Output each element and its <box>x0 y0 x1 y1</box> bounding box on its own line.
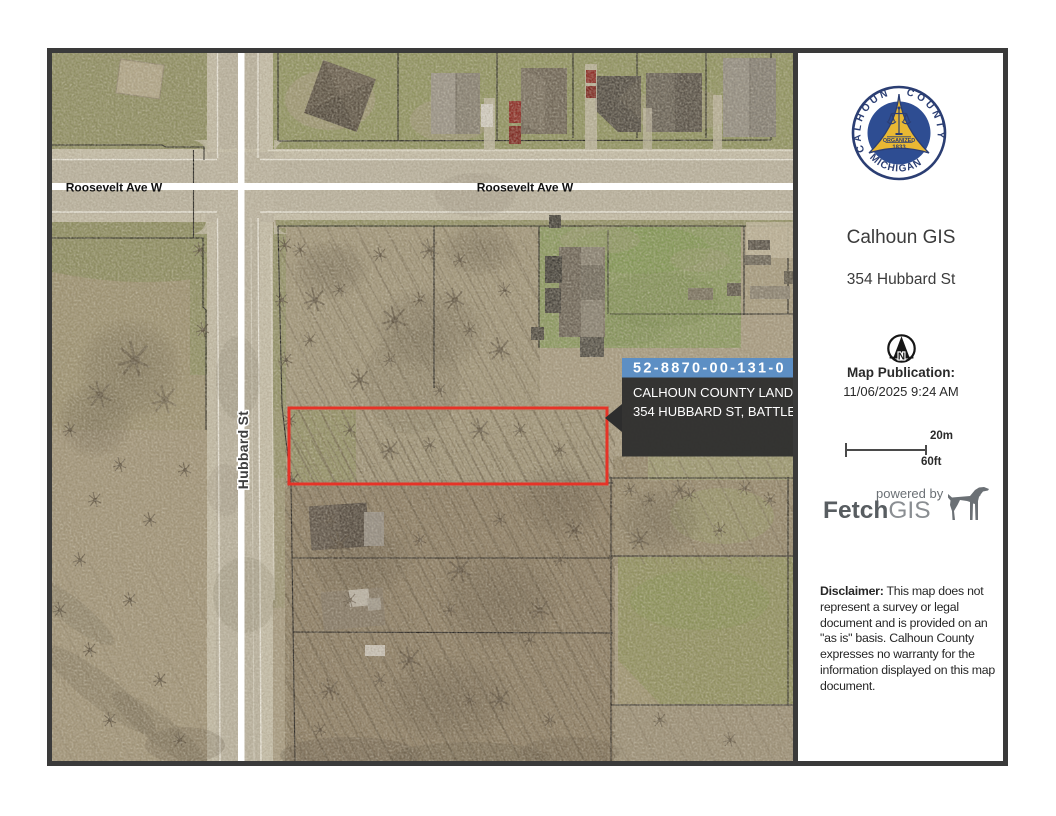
svg-text:20m: 20m <box>930 430 953 442</box>
svg-text:Roosevelt Ave W: Roosevelt Ave W <box>477 181 574 195</box>
svg-text:N: N <box>898 351 905 362</box>
svg-text:Hubbard St: Hubbard St <box>235 411 251 489</box>
svg-text:52-8870-00-131-0: 52-8870-00-131-0 <box>633 361 786 377</box>
svg-text:354 HUBBARD ST, BATTLE CREEK: 354 HUBBARD ST, BATTLE CREEK <box>633 404 798 419</box>
svg-text:CALHOUN COUNTY LAND BANK: CALHOUN COUNTY LAND BANK <box>633 385 798 400</box>
svg-text:1833: 1833 <box>892 145 906 151</box>
svg-text:ORGANIZED: ORGANIZED <box>883 138 915 144</box>
svg-text:Roosevelt Ave W: Roosevelt Ave W <box>66 181 163 195</box>
svg-text:60ft: 60ft <box>921 456 942 468</box>
